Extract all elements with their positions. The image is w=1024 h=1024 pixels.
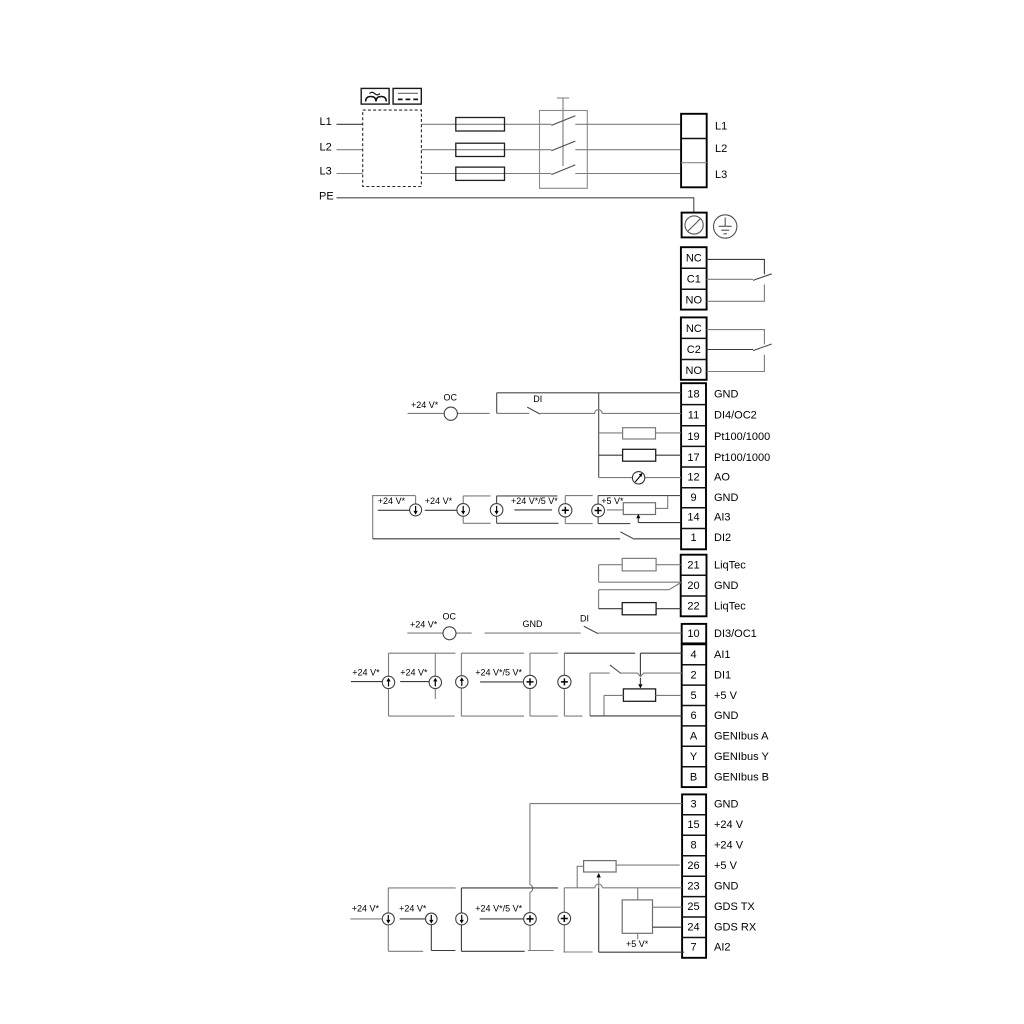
- svg-text:DI: DI: [580, 614, 589, 624]
- svg-text:DI4/OC2: DI4/OC2: [714, 410, 757, 422]
- svg-text:OC: OC: [444, 393, 458, 403]
- svg-text:+5 V*: +5 V*: [601, 496, 624, 506]
- svg-text:DI: DI: [533, 394, 542, 404]
- svg-text:11: 11: [688, 410, 699, 422]
- svg-text:25: 25: [687, 901, 699, 913]
- svg-text:GND: GND: [714, 388, 739, 400]
- svg-text:LiqTec: LiqTec: [714, 601, 746, 613]
- svg-text:Pt100/1000: Pt100/1000: [714, 452, 770, 464]
- svg-text:GND: GND: [714, 880, 739, 892]
- svg-text:L1: L1: [320, 116, 332, 128]
- svg-text:23: 23: [687, 880, 699, 892]
- svg-text:GDS TX: GDS TX: [714, 901, 755, 913]
- svg-text:12: 12: [687, 472, 699, 484]
- svg-text:+24 V*: +24 V*: [352, 903, 380, 913]
- svg-text:DI3/OC1: DI3/OC1: [714, 628, 757, 640]
- svg-text:PE: PE: [319, 190, 334, 202]
- svg-text:AI1: AI1: [714, 649, 731, 661]
- svg-text:+24 V*: +24 V*: [425, 496, 453, 506]
- svg-text:6: 6: [690, 710, 696, 722]
- svg-text:NC: NC: [686, 253, 702, 265]
- svg-text:L1: L1: [715, 121, 727, 133]
- svg-text:C2: C2: [687, 344, 701, 356]
- svg-text:B: B: [690, 771, 697, 783]
- svg-text:C1: C1: [687, 274, 701, 286]
- svg-text:3: 3: [690, 799, 696, 811]
- svg-text:LiqTec: LiqTec: [714, 560, 746, 572]
- svg-text:8: 8: [690, 840, 696, 852]
- svg-text:AI3: AI3: [714, 512, 731, 524]
- svg-text:Pt100/1000: Pt100/1000: [714, 431, 770, 443]
- svg-text:GENIbus A: GENIbus A: [714, 731, 769, 743]
- svg-text:GENIbus Y: GENIbus Y: [714, 751, 769, 763]
- svg-text:7: 7: [690, 942, 696, 954]
- svg-text:21: 21: [687, 560, 699, 572]
- svg-text:+5 V: +5 V: [714, 690, 738, 702]
- svg-text:AI2: AI2: [714, 942, 731, 954]
- svg-text:24: 24: [687, 921, 699, 933]
- svg-text:+24 V*/5 V*: +24 V*/5 V*: [511, 496, 558, 506]
- svg-text:GND: GND: [714, 580, 739, 592]
- svg-text:DI1: DI1: [714, 669, 731, 681]
- svg-text:4: 4: [690, 649, 696, 661]
- svg-text:DI2: DI2: [714, 532, 731, 544]
- svg-text:GDS RX: GDS RX: [714, 921, 757, 933]
- svg-text:GND: GND: [714, 799, 739, 811]
- svg-text:+24 V: +24 V: [714, 840, 744, 852]
- svg-text:A: A: [690, 731, 698, 743]
- svg-text:1: 1: [690, 532, 696, 544]
- svg-text:GND: GND: [714, 710, 739, 722]
- svg-text:+24 V*: +24 V*: [399, 903, 427, 913]
- svg-text:L3: L3: [320, 165, 332, 177]
- svg-text:+24 V*: +24 V*: [411, 400, 439, 410]
- svg-text:19: 19: [687, 431, 699, 443]
- svg-text:20: 20: [687, 580, 699, 592]
- svg-text:17: 17: [687, 452, 699, 464]
- svg-text:+5 V: +5 V: [714, 860, 738, 872]
- svg-text:+24 V*: +24 V*: [400, 668, 428, 678]
- svg-text:+24 V*: +24 V*: [410, 620, 438, 630]
- svg-text:OC: OC: [443, 612, 457, 622]
- svg-text:+24 V*: +24 V*: [378, 496, 406, 506]
- svg-text:9: 9: [690, 492, 696, 504]
- svg-text:+24 V*/5 V*: +24 V*/5 V*: [475, 668, 522, 678]
- svg-text:15: 15: [687, 819, 699, 831]
- svg-text:2: 2: [690, 669, 696, 681]
- svg-text:22: 22: [687, 601, 699, 613]
- svg-text:GND: GND: [523, 619, 544, 629]
- svg-text:L3: L3: [715, 169, 727, 181]
- svg-text:+24 V: +24 V: [714, 819, 744, 831]
- svg-text:18: 18: [687, 388, 699, 400]
- svg-text:GENIbus B: GENIbus B: [714, 771, 769, 783]
- svg-text:GND: GND: [714, 492, 739, 504]
- svg-text:NO: NO: [686, 295, 703, 307]
- svg-text:+24 V*: +24 V*: [352, 668, 380, 678]
- svg-text:AO: AO: [714, 472, 730, 484]
- svg-text:NO: NO: [686, 365, 703, 377]
- svg-text:14: 14: [687, 512, 699, 524]
- svg-text:NC: NC: [686, 323, 702, 335]
- svg-text:5: 5: [690, 690, 696, 702]
- svg-text:L2: L2: [320, 141, 332, 153]
- svg-text:Y: Y: [690, 751, 698, 763]
- svg-text:10: 10: [687, 628, 699, 640]
- svg-text:L2: L2: [715, 143, 727, 155]
- svg-text:26: 26: [687, 860, 699, 872]
- svg-text:+24 V*/5 V*: +24 V*/5 V*: [475, 903, 522, 913]
- svg-text:+5 V*: +5 V*: [626, 939, 649, 949]
